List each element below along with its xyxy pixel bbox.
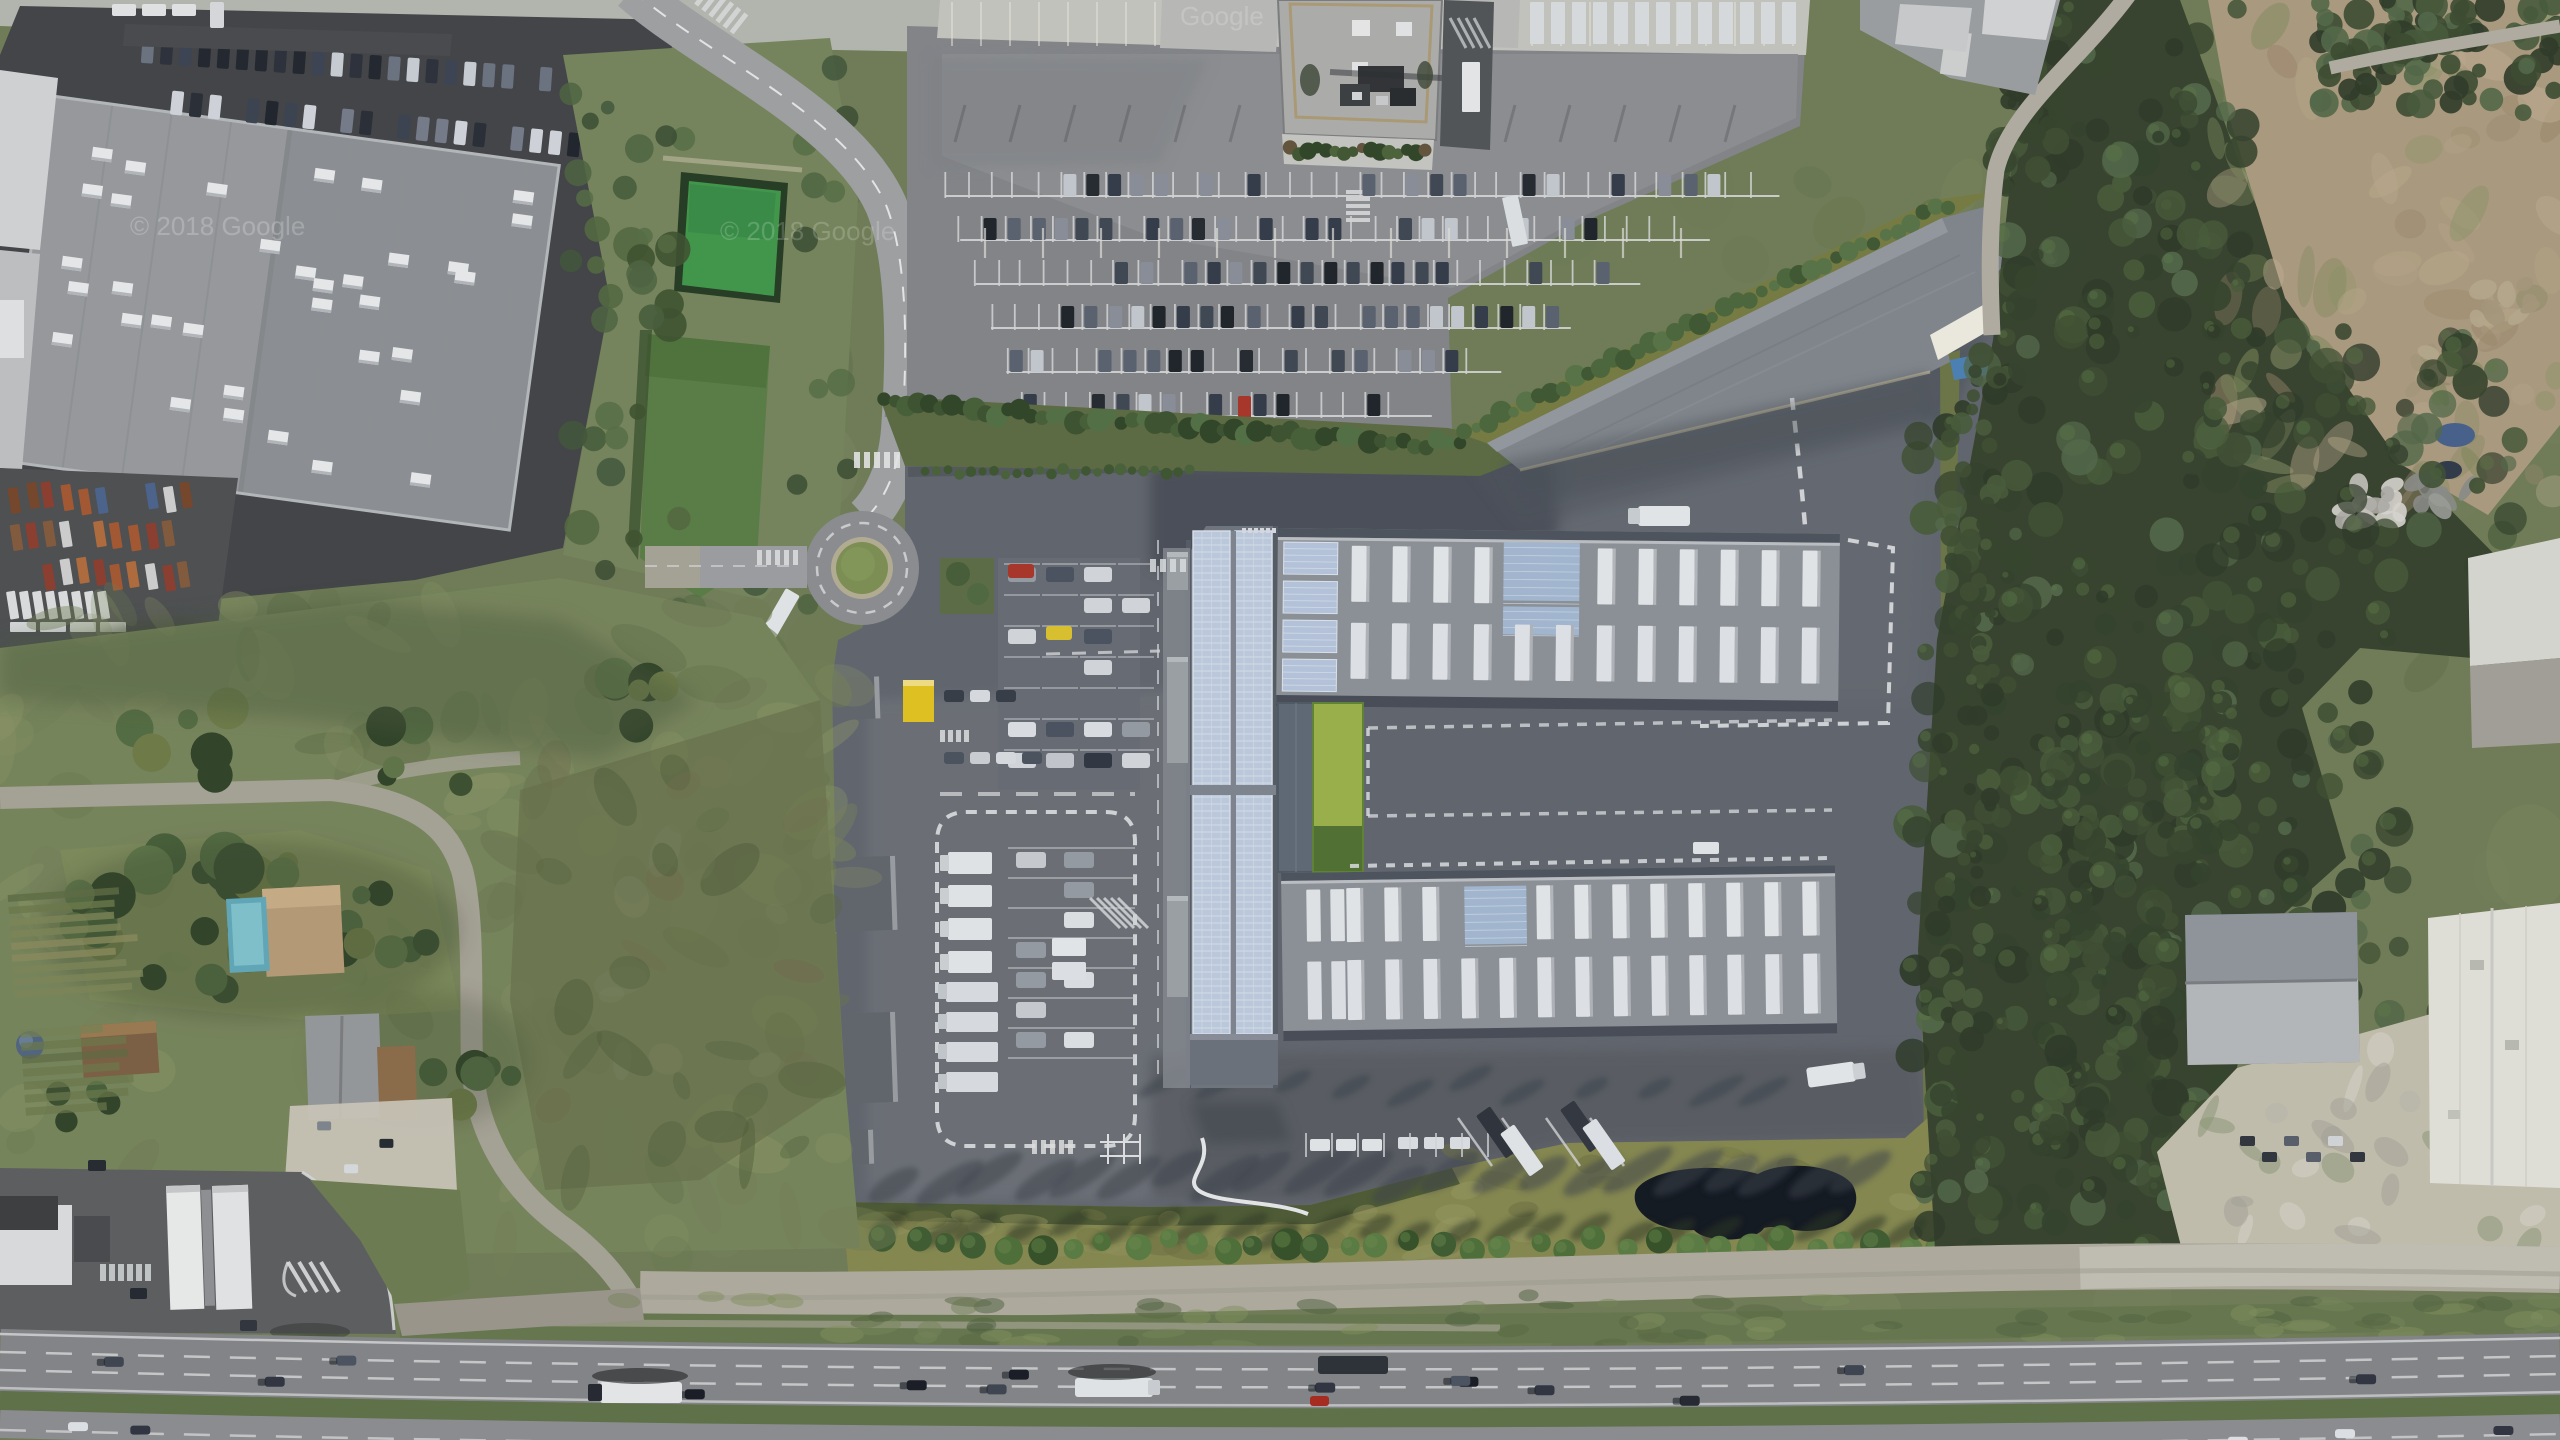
svg-text:© 2018 Google: © 2018 Google [130,211,305,241]
svg-text:© 2018 Google: © 2018 Google [720,216,895,246]
svg-text:Google: Google [1180,1,1264,31]
